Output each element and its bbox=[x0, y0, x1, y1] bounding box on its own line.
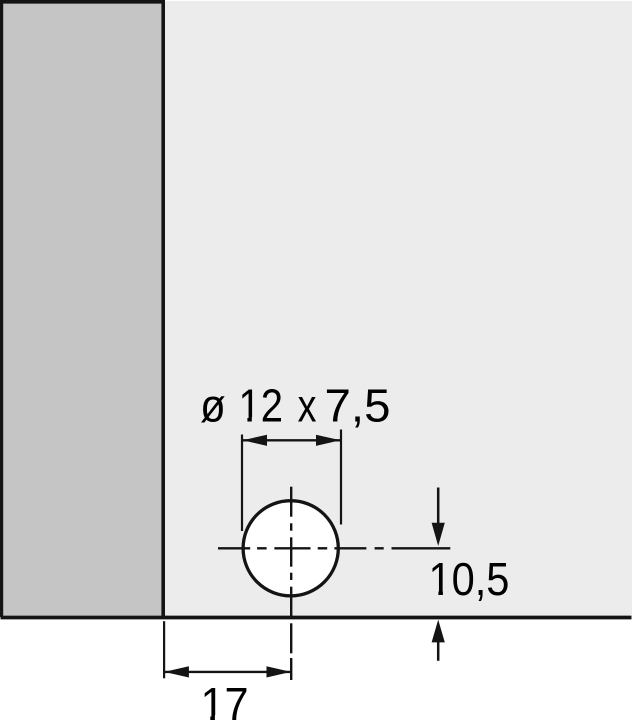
svg-text:17: 17 bbox=[200, 678, 248, 720]
svg-text:ø: ø bbox=[200, 380, 226, 432]
svg-text:10,5: 10,5 bbox=[428, 553, 509, 605]
svg-text:12: 12 bbox=[239, 380, 283, 432]
svg-text:x: x bbox=[298, 380, 317, 432]
svg-text:7,5: 7,5 bbox=[325, 380, 391, 432]
